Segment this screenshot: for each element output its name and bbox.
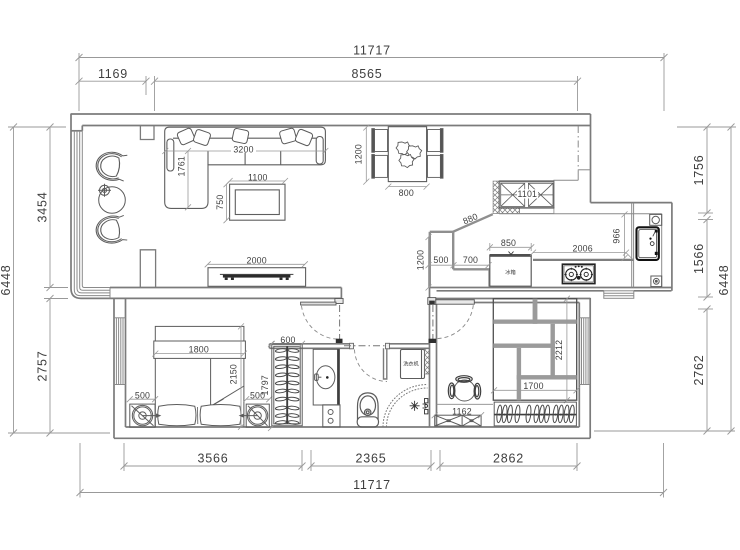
- svg-text:1200: 1200: [353, 144, 363, 164]
- svg-text:冰箱: 冰箱: [505, 268, 515, 276]
- svg-text:500: 500: [433, 255, 448, 265]
- svg-text:2365: 2365: [355, 452, 386, 466]
- svg-text:6448: 6448: [717, 264, 731, 295]
- svg-text:2757: 2757: [36, 350, 50, 381]
- svg-text:洗衣机: 洗衣机: [403, 360, 419, 368]
- svg-text:850: 850: [501, 238, 516, 248]
- svg-text:8565: 8565: [351, 67, 382, 81]
- svg-text:800: 800: [399, 188, 414, 198]
- svg-text:700: 700: [463, 255, 478, 265]
- svg-text:1101: 1101: [517, 189, 537, 199]
- svg-text:966: 966: [611, 228, 621, 243]
- svg-text:3454: 3454: [36, 191, 50, 222]
- svg-text:1756: 1756: [692, 154, 706, 185]
- svg-text:600: 600: [280, 335, 295, 345]
- svg-text:1797: 1797: [260, 375, 270, 395]
- svg-text:1200: 1200: [415, 250, 425, 270]
- svg-text:2862: 2862: [493, 452, 524, 466]
- svg-text:3566: 3566: [197, 452, 228, 466]
- svg-text:1761: 1761: [176, 156, 186, 176]
- svg-text:2006: 2006: [573, 243, 593, 253]
- svg-text:11717: 11717: [353, 44, 391, 58]
- svg-text:1100: 1100: [248, 172, 268, 182]
- svg-text:500: 500: [135, 390, 150, 400]
- svg-text:1169: 1169: [98, 67, 128, 81]
- svg-text:750: 750: [215, 195, 225, 210]
- svg-text:2762: 2762: [692, 354, 706, 385]
- svg-text:2150: 2150: [228, 364, 238, 384]
- svg-text:1566: 1566: [692, 243, 706, 274]
- svg-text:2000: 2000: [247, 255, 267, 265]
- svg-text:3200: 3200: [233, 144, 253, 154]
- svg-text:1700: 1700: [523, 381, 543, 391]
- svg-text:2212: 2212: [554, 340, 564, 360]
- svg-text:6448: 6448: [0, 264, 13, 295]
- svg-text:1162: 1162: [452, 406, 472, 416]
- svg-text:1800: 1800: [189, 345, 209, 355]
- svg-text:11717: 11717: [353, 478, 391, 492]
